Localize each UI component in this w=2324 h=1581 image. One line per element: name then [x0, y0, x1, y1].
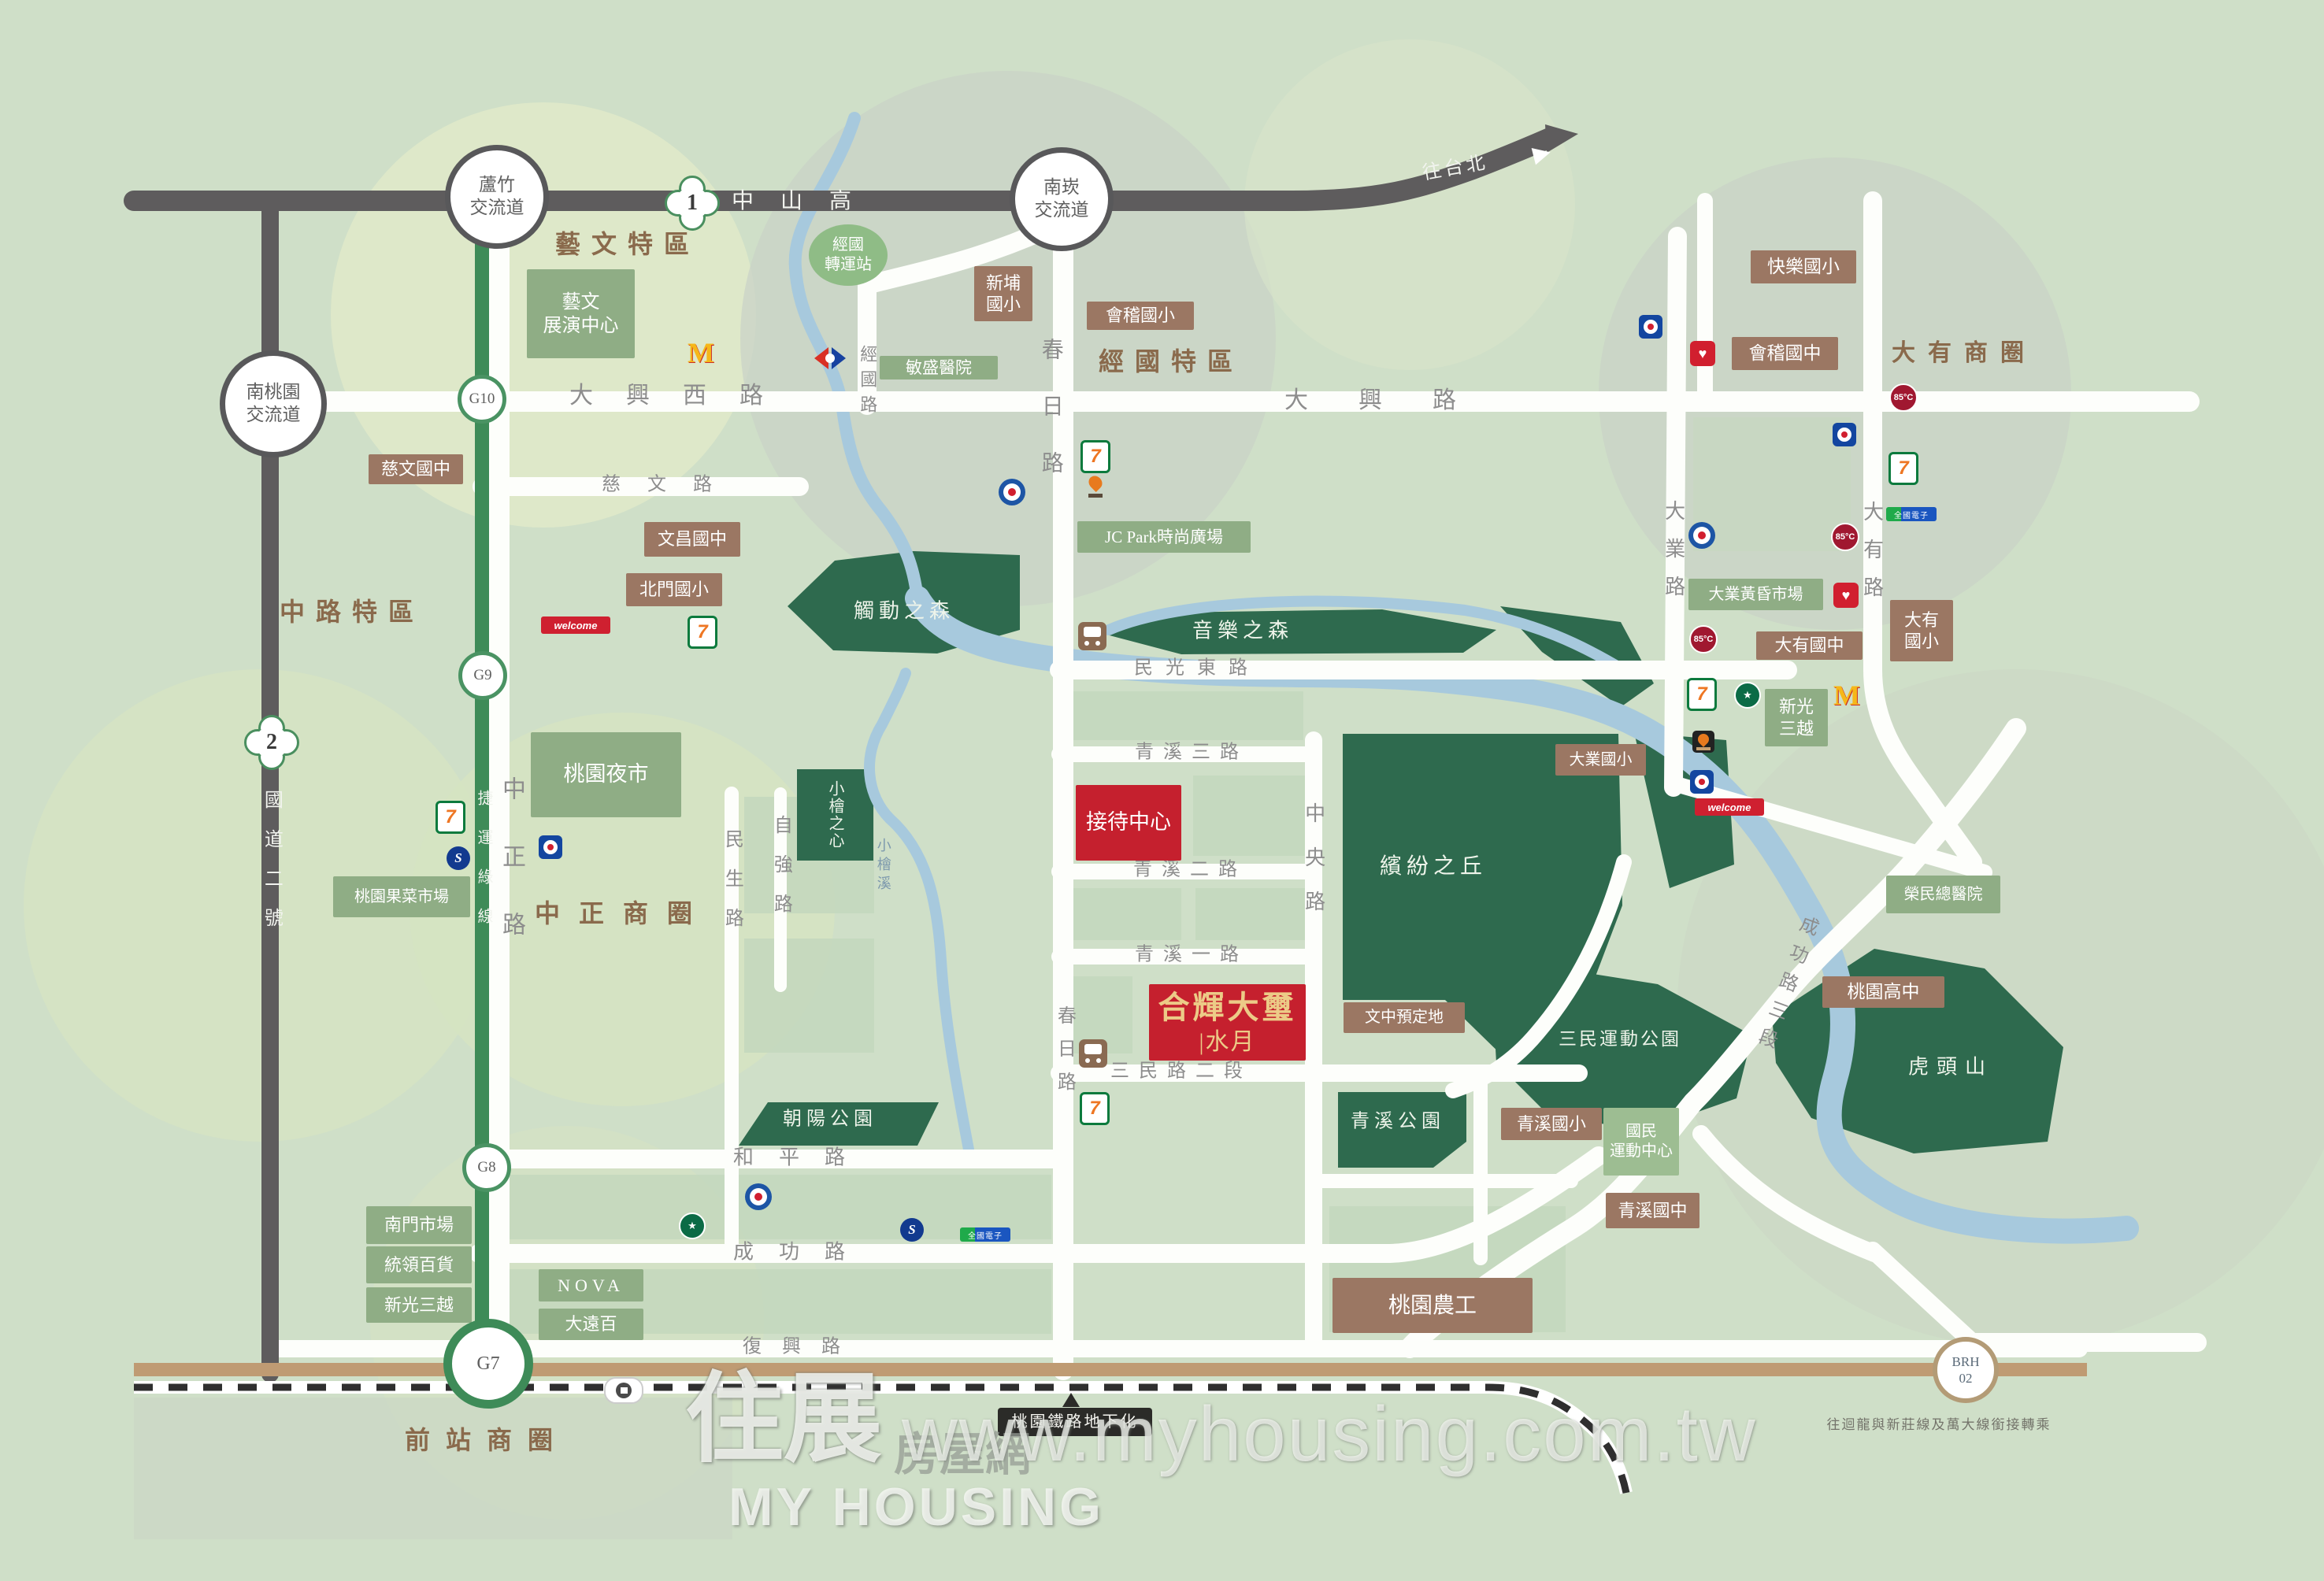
road-chenggong: 成功路 — [733, 1239, 870, 1264]
district-zhongzheng: 中正商圈 — [535, 898, 711, 928]
facility-shinkong-dayou: 新光 三越 — [1765, 689, 1828, 746]
facility-produce-market: 桃園果菜市場 — [333, 876, 470, 917]
arrow-icon — [1533, 146, 1551, 163]
road-ziqiang: 自強路 — [769, 815, 792, 933]
school-kuaiji-elem: 會稽國小 — [1087, 302, 1194, 330]
station-g9: G9 — [458, 651, 507, 700]
pxmart-icon — [1833, 423, 1856, 446]
hwy-badge-1: 1 — [667, 178, 717, 228]
facility-sports-center: 國民 運動中心 — [1603, 1108, 1679, 1176]
mcd-icon: M — [1833, 679, 1860, 712]
train-icon — [604, 1377, 643, 1404]
park-binfen-hill: 繽紛之丘 — [1380, 853, 1487, 880]
road-zhongzheng: 中正路 — [497, 776, 525, 979]
school-dayou-elem: 大有 國小 — [1890, 600, 1953, 661]
seven-icon: 7 — [1687, 678, 1717, 711]
facility-shinkong-front: 新光三越 — [366, 1287, 472, 1323]
park-sanmin-sports: 三民運動公園 — [1559, 1028, 1681, 1050]
school-taoyuan-high: 桃園高中 — [1822, 976, 1944, 1008]
label-xiaogui-creek: 小檜溪 — [874, 838, 891, 894]
road-chunri-2: 春日路 — [1053, 1005, 1076, 1105]
road-metro-green: 捷運綠線 — [474, 790, 493, 947]
mcd-icon: M — [688, 336, 714, 369]
park-chudong-forest: 觸動之森 — [854, 598, 954, 623]
road-qingxi-1: 青溪一路 — [1135, 944, 1248, 967]
bus-icon — [1079, 1039, 1107, 1068]
road-zhongshan-hwy: 中山高 — [732, 188, 878, 215]
road-jingguo: 經國路 — [857, 345, 877, 420]
c85-icon: 85°C — [1689, 625, 1718, 654]
facility-arts-center: 藝文 展演中心 — [527, 269, 635, 358]
school-dayou-jr: 大有國中 — [1756, 631, 1863, 660]
hwy-badge-2-number: 2 — [246, 717, 297, 768]
road-dayou: 大有路 — [1859, 501, 1884, 614]
bank-icon: S — [900, 1218, 924, 1242]
district-yiwen: 藝文特區 — [555, 229, 700, 259]
bus-icon — [1078, 622, 1106, 650]
pxmart-icon — [539, 835, 562, 859]
ic-luzhu: 蘆竹 交流道 — [445, 145, 549, 249]
road-qingxi-3: 青溪三路 — [1135, 742, 1248, 765]
school-taoyuan-agri: 桃園農工 — [1333, 1278, 1533, 1333]
facility-tonlin: 統領百貨 — [366, 1246, 472, 1283]
facility-minsheng-hospital: 敏盛醫院 — [880, 356, 998, 380]
park-qingxi: 青溪公園 — [1351, 1111, 1445, 1134]
carrefour-icon — [814, 346, 846, 370]
hwy-badge-1-number: 1 — [667, 178, 717, 228]
road-ciwen: 慈文路 — [602, 474, 739, 497]
starbucks-icon: ★ — [679, 1213, 706, 1239]
station-brh02: BRH 02 — [1933, 1337, 1999, 1403]
school-xinpu: 新埔 國小 — [974, 266, 1032, 321]
facility-nanmen-market: 南門市場 — [366, 1206, 472, 1244]
school-daye-elem: 大業國小 — [1555, 744, 1646, 776]
school-kuaiji-jr: 會稽國中 — [1732, 337, 1838, 370]
road-daxing-w: 大興西路 — [569, 382, 796, 410]
park-chaoyang: 朝陽公園 — [783, 1109, 877, 1131]
roundel-icon — [999, 479, 1025, 505]
seven-icon: 7 — [1080, 1092, 1110, 1125]
watermark-url: www.myhousing.com.tw — [902, 1390, 1757, 1479]
school-kuaile: 快樂國小 — [1751, 250, 1856, 283]
pxmart-icon — [1639, 315, 1662, 339]
welcome-icon: welcome — [541, 616, 610, 634]
road-daxing: 大興路 — [1284, 387, 1507, 415]
heart-icon: ♥ — [1833, 583, 1859, 608]
station-g8: G8 — [462, 1143, 511, 1192]
ic-south-taoyuan: 南桃園 交流道 — [220, 350, 327, 457]
facility-nova: NOVA — [539, 1269, 643, 1301]
bank-icon: S — [447, 846, 470, 870]
district-jingguo: 經國特區 — [1099, 346, 1244, 376]
c85-icon: 85°C — [1831, 523, 1859, 551]
road-qingxi-2: 青溪二路 — [1133, 859, 1247, 882]
note-metro-transfer: 往迴龍與新莊線及萬大線銜接轉乘 — [1827, 1417, 2052, 1433]
watermark-logo-latin: MY HOUSING — [728, 1476, 1104, 1538]
school-qingxi-elem: 青溪國小 — [1501, 1108, 1602, 1140]
seven-icon: 7 — [1888, 452, 1918, 485]
c85-icon: 85°C — [1889, 383, 1918, 412]
flame-icon — [1087, 476, 1104, 498]
mos-icon — [1692, 731, 1714, 753]
watermark-logo-cjk: 住展 — [685, 1338, 882, 1481]
seven-icon: 7 — [436, 801, 465, 834]
facility-veterans-hospital: 榮民總醫院 — [1886, 876, 2000, 913]
school-beimen: 北門國小 — [626, 573, 722, 606]
starbucks-icon: ★ — [1734, 682, 1761, 709]
road-sanmin-2: 三民路二段 — [1110, 1061, 1252, 1083]
facility-jingguo-terminal: 經國 轉運站 — [809, 224, 888, 286]
park-hutou-mountain: 虎頭山 — [1908, 1054, 1993, 1079]
road-national-2: 國道二號 — [260, 790, 283, 947]
site-wenzhong: 文中預定地 — [1344, 1002, 1465, 1033]
facility-night-market: 桃園夜市 — [531, 732, 681, 817]
ic-nankan: 南崁 交流道 — [1010, 147, 1114, 251]
school-qingxi-jr: 青溪國中 — [1606, 1193, 1699, 1228]
district-zhonglu: 中路特區 — [280, 597, 424, 627]
welcome-icon: welcome — [1695, 798, 1764, 816]
facility-fe-dept: 大遠百 — [539, 1309, 643, 1340]
elec-icon: 全國電子 — [960, 1227, 1010, 1242]
station-g7: G7 — [443, 1319, 533, 1409]
road-heping: 和平路 — [733, 1145, 870, 1169]
station-g10: G10 — [458, 375, 506, 424]
site-main-line2: |水月 — [1199, 1027, 1255, 1057]
park-xiaogui-heart: 小檜之心 — [825, 780, 844, 850]
school-ciwen: 慈文國中 — [369, 454, 463, 484]
district-dayou: 大有商圈 — [1892, 339, 2037, 368]
school-wenchang: 文昌國中 — [644, 522, 740, 557]
seven-icon: 7 — [1080, 440, 1110, 473]
roundel-icon — [1688, 522, 1715, 549]
seven-icon: 7 — [688, 616, 717, 649]
facility-jcpark: JC Park時尚廣場 — [1077, 521, 1251, 553]
pxmart-icon — [1690, 770, 1714, 794]
location-map: 住展 房屋網 MY HOUSING www.myhousing.com.tw 蘆… — [0, 0, 2324, 1581]
site-reception: 接待中心 — [1076, 785, 1181, 861]
road-chunri: 春日路 — [1037, 338, 1064, 508]
heart-icon: ♥ — [1690, 341, 1715, 366]
road-daye: 大業路 — [1661, 500, 1685, 613]
road-minguang-e: 民光東路 — [1134, 657, 1260, 680]
park-music-forest: 音樂之森 — [1192, 618, 1293, 642]
roundel-icon — [745, 1183, 772, 1210]
elec-icon: 全國電子 — [1886, 507, 1937, 521]
hwy-badge-2: 2 — [246, 717, 297, 768]
facility-daye-market: 大業黃昏市場 — [1688, 579, 1823, 610]
site-main: 合輝大璽|水月 — [1149, 984, 1306, 1061]
site-main-line1: 合輝大璽 — [1158, 988, 1297, 1027]
district-qianzhan: 前站商圈 — [405, 1425, 569, 1455]
road-minsheng: 民生路 — [721, 829, 743, 947]
road-zhongyang: 中央路 — [1301, 802, 1325, 935]
